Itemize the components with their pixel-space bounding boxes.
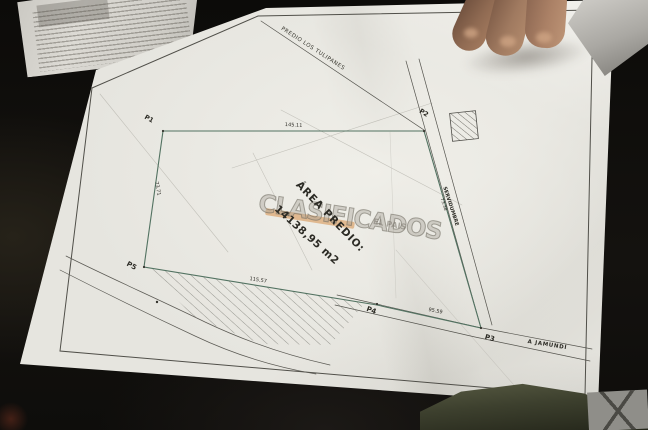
fingertip-highlight (536, 32, 552, 43)
neighbor-boundary-line (261, 21, 424, 130)
measurement-north: 145.11 (285, 122, 303, 129)
fingertip-highlight (464, 28, 478, 38)
textured-table-corner (587, 389, 648, 430)
hatched-structure-square (450, 111, 479, 142)
photo-of-survey-plan: CLASIFICADOS EL PAIS PREDIO LOS TULIPANE… (0, 0, 648, 430)
fingertip-highlight (500, 36, 516, 47)
